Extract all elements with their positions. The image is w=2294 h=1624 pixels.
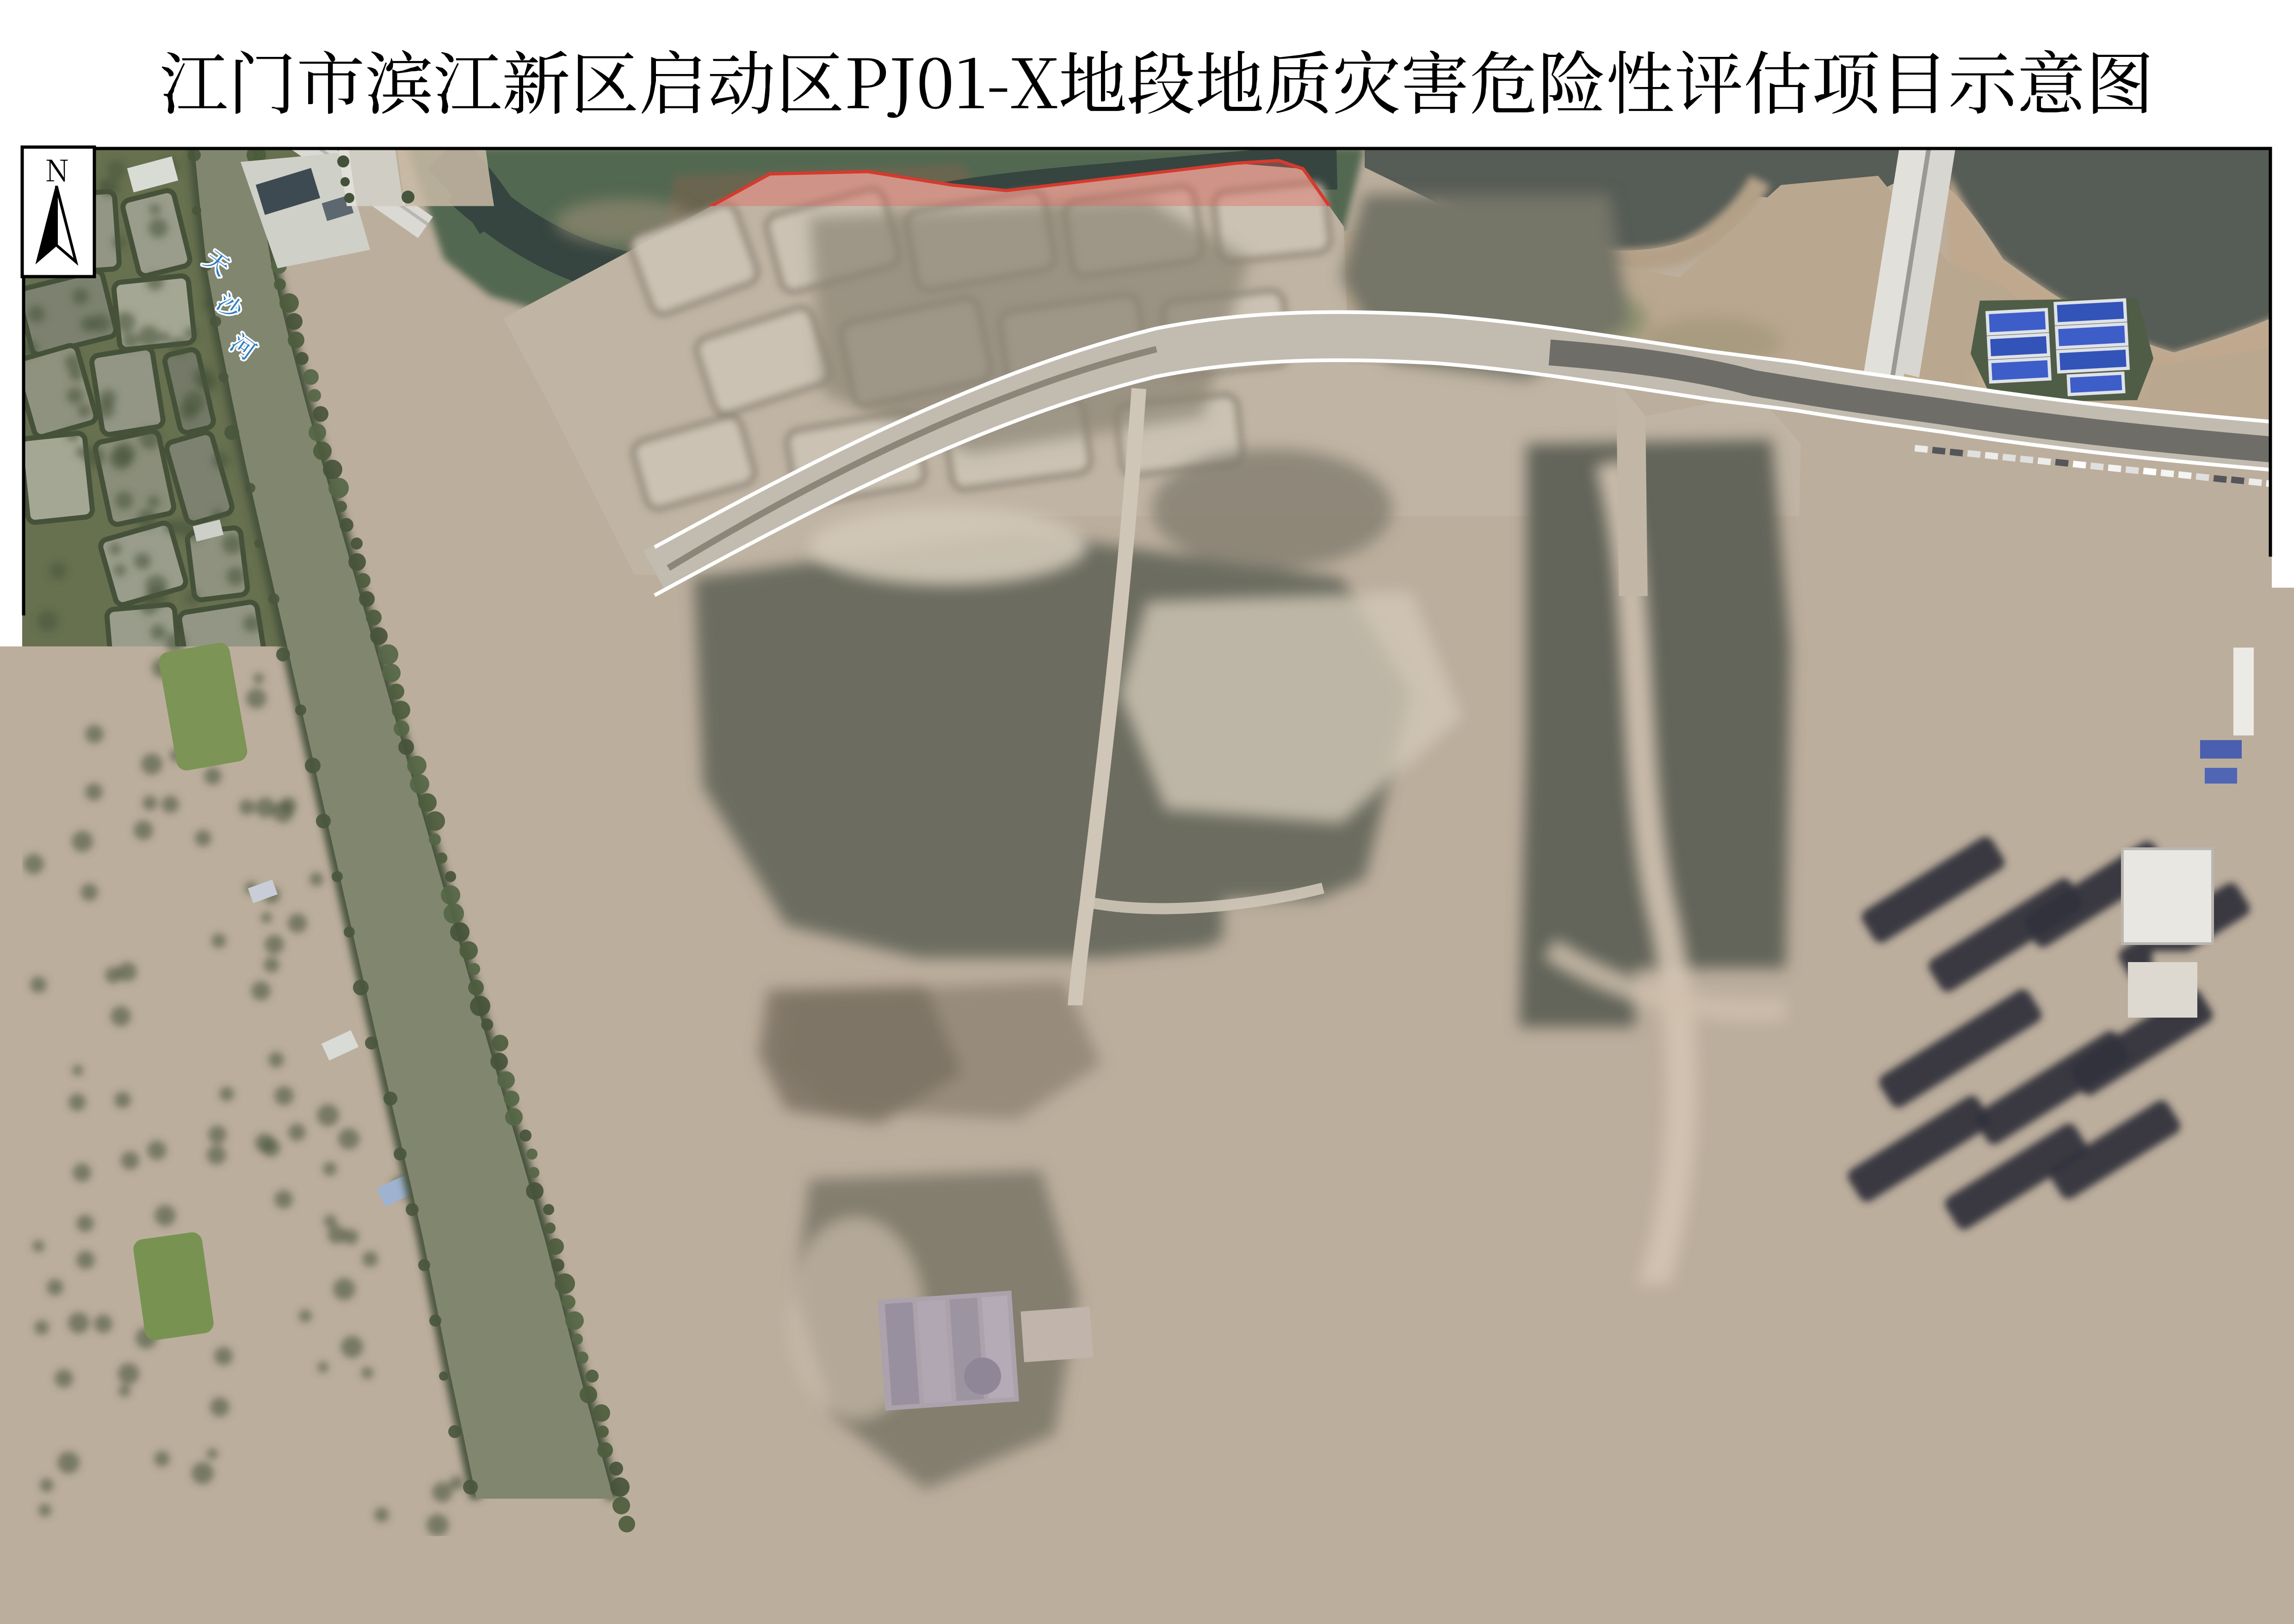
svg-text:1:4,000: 1:4,000	[1074, 1546, 1161, 1575]
